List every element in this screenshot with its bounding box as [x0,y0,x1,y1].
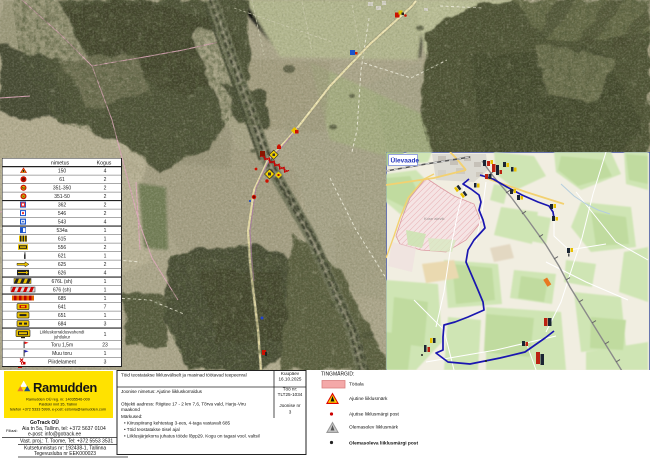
svg-text:2: 2 [104,262,107,268]
svg-text:e-post: info@gotrack.ee: e-post: info@gotrack.ee [28,432,81,438]
svg-text:Märkused:: Märkused: [121,414,142,419]
svg-text:Töö nr:: Töö nr: [283,387,298,392]
svg-text:1: 1 [104,296,107,302]
svg-text:Vast. proj.: T. Toome, Tel: +3: Vast. proj.: T. Toome, Tel: +372 5553 35… [20,439,113,445]
svg-text:Ajutise liiklusmärgi post: Ajutise liiklusmärgi post [349,412,400,418]
svg-text:150: 150 [58,169,67,175]
svg-text:telefon +372 5333 5999, e-post: telefon +372 5333 5999, e-post: estonia@… [10,408,106,412]
svg-text:3: 3 [104,360,107,366]
svg-text:2: 2 [104,245,107,251]
svg-text:3: 3 [289,410,292,415]
svg-text:Muu toru: Muu toru [52,351,72,357]
svg-text:Ajutine liiklusmärk: Ajutine liiklusmärk [349,396,388,402]
svg-text:Paldiski mnt 35, Tallinn: Paldiski mnt 35, Tallinn [39,403,78,407]
svg-text:4: 4 [104,169,107,175]
svg-text:676L (sh): 676L (sh) [52,279,73,285]
svg-text:556: 556 [58,245,67,251]
svg-text:1: 1 [104,313,107,319]
svg-text:2: 2 [104,211,107,217]
svg-text:534a: 534a [56,228,67,234]
svg-text:3: 3 [104,322,107,328]
svg-text:maakond: maakond [121,407,140,412]
svg-text:Objekti aadress: Riigitee 17 -: Objekti aadress: Riigitee 17 - 2 km 7,6,… [121,402,246,407]
svg-text:50: 50 [22,186,26,190]
svg-text:1: 1 [104,237,107,243]
svg-text:543: 543 [58,220,67,226]
svg-text:2: 2 [104,203,107,209]
svg-text:625: 625 [58,262,67,268]
svg-text:676 (sh): 676 (sh) [53,288,72,294]
svg-text:Tööala: Tööala [349,382,364,388]
svg-text:626: 626 [58,271,67,277]
svg-text:351-350: 351-350 [53,186,72,192]
svg-text:juhtlukur: juhtlukur [53,335,71,340]
svg-text:23: 23 [102,343,108,349]
svg-text:Piirdelament: Piirdelament [48,360,76,366]
svg-text:Ülevaade: Ülevaade [391,156,420,165]
svg-text:Joonise nimetus: Ajutine liikl: Joonise nimetus: Ajutine liikluskorraldu… [121,389,203,394]
svg-text:30: 30 [22,195,26,199]
svg-text:Ramudden: Ramudden [33,380,97,395]
svg-text:Olemasolev liiklusmärk: Olemasolev liiklusmärk [349,425,399,431]
svg-text:61: 61 [59,177,65,183]
svg-text:Toru 1,5m: Toru 1,5m [51,343,73,349]
svg-text:684: 684 [58,322,67,328]
svg-text:Filiaal:: Filiaal: [6,428,18,433]
svg-text:641: 641 [58,305,67,311]
svg-text:362: 362 [58,203,67,209]
svg-text:Ramudden OÜ reg. nr. 14035546-: Ramudden OÜ reg. nr. 14035546-009 [26,398,90,402]
svg-text:• Kiiruspiirang kehtestag 3-: • Kiiruspiirang kehtestag 3-ees, 4-taga … [124,421,230,426]
svg-text:16.10.2025: 16.10.2025 [279,377,302,382]
svg-text:Kogus: Kogus [97,160,112,166]
svg-text:1: 1 [104,228,107,234]
svg-text:TLT25-1034: TLT25-1034 [278,392,303,397]
svg-text:Kose alevik: Kose alevik [424,216,444,221]
svg-text:651: 651 [58,313,67,319]
svg-text:nimetus: nimetus [51,160,70,166]
svg-text:Kuupäev: Kuupäev [281,371,300,376]
svg-text:2: 2 [104,186,107,192]
svg-text:TINGMÄRGID:: TINGMÄRGID: [321,371,354,378]
svg-text:1: 1 [104,288,107,294]
svg-text:1: 1 [104,254,107,260]
svg-text:Tegevusluba nr EEK000023: Tegevusluba nr EEK000023 [34,451,96,457]
svg-text:Joonise nr: Joonise nr [279,403,301,408]
svg-text:• Liiklusjärjekorra juhatus: • Liiklusjärjekorra juhatus tööde lõpp29… [124,434,260,439]
svg-text:1: 1 [104,332,107,338]
svg-text:• Töid teostatakse öisel aja: • Töid teostatakse öisel ajal [124,427,180,432]
svg-text:Töid teostatakse liiklusvälise: Töid teostatakse liiklusväliselt ja masi… [121,373,247,378]
svg-text:2: 2 [104,194,107,200]
svg-text:Olemasoleva liiklusmärgi post: Olemasoleva liiklusmärgi post [349,441,418,447]
svg-text:685: 685 [58,296,67,302]
svg-text:4: 4 [104,271,107,277]
svg-text:546: 546 [58,211,67,217]
svg-text:621: 621 [58,254,67,260]
svg-text:2: 2 [104,177,107,183]
svg-text:615: 615 [58,237,67,243]
svg-text:1: 1 [104,279,107,285]
svg-text:1: 1 [104,351,107,357]
svg-text:7: 7 [104,305,107,311]
svg-text:4: 4 [104,220,107,226]
svg-text:351-50: 351-50 [54,194,70,200]
svg-text:GoTrack OÜ: GoTrack OÜ [30,419,59,426]
